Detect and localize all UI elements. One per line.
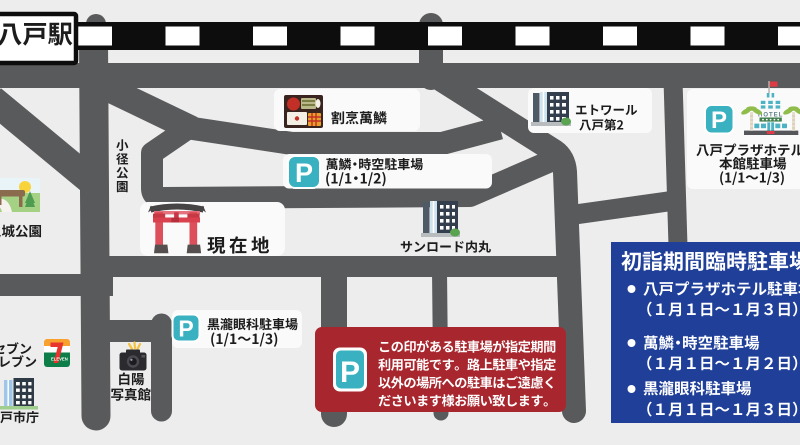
svg-text:ELEVEN: ELEVEN [51, 357, 68, 362]
svg-text:P: P [295, 158, 313, 188]
svg-text:P: P [711, 107, 727, 134]
svg-text:P: P [178, 316, 193, 342]
svg-text:P: P [340, 356, 360, 389]
